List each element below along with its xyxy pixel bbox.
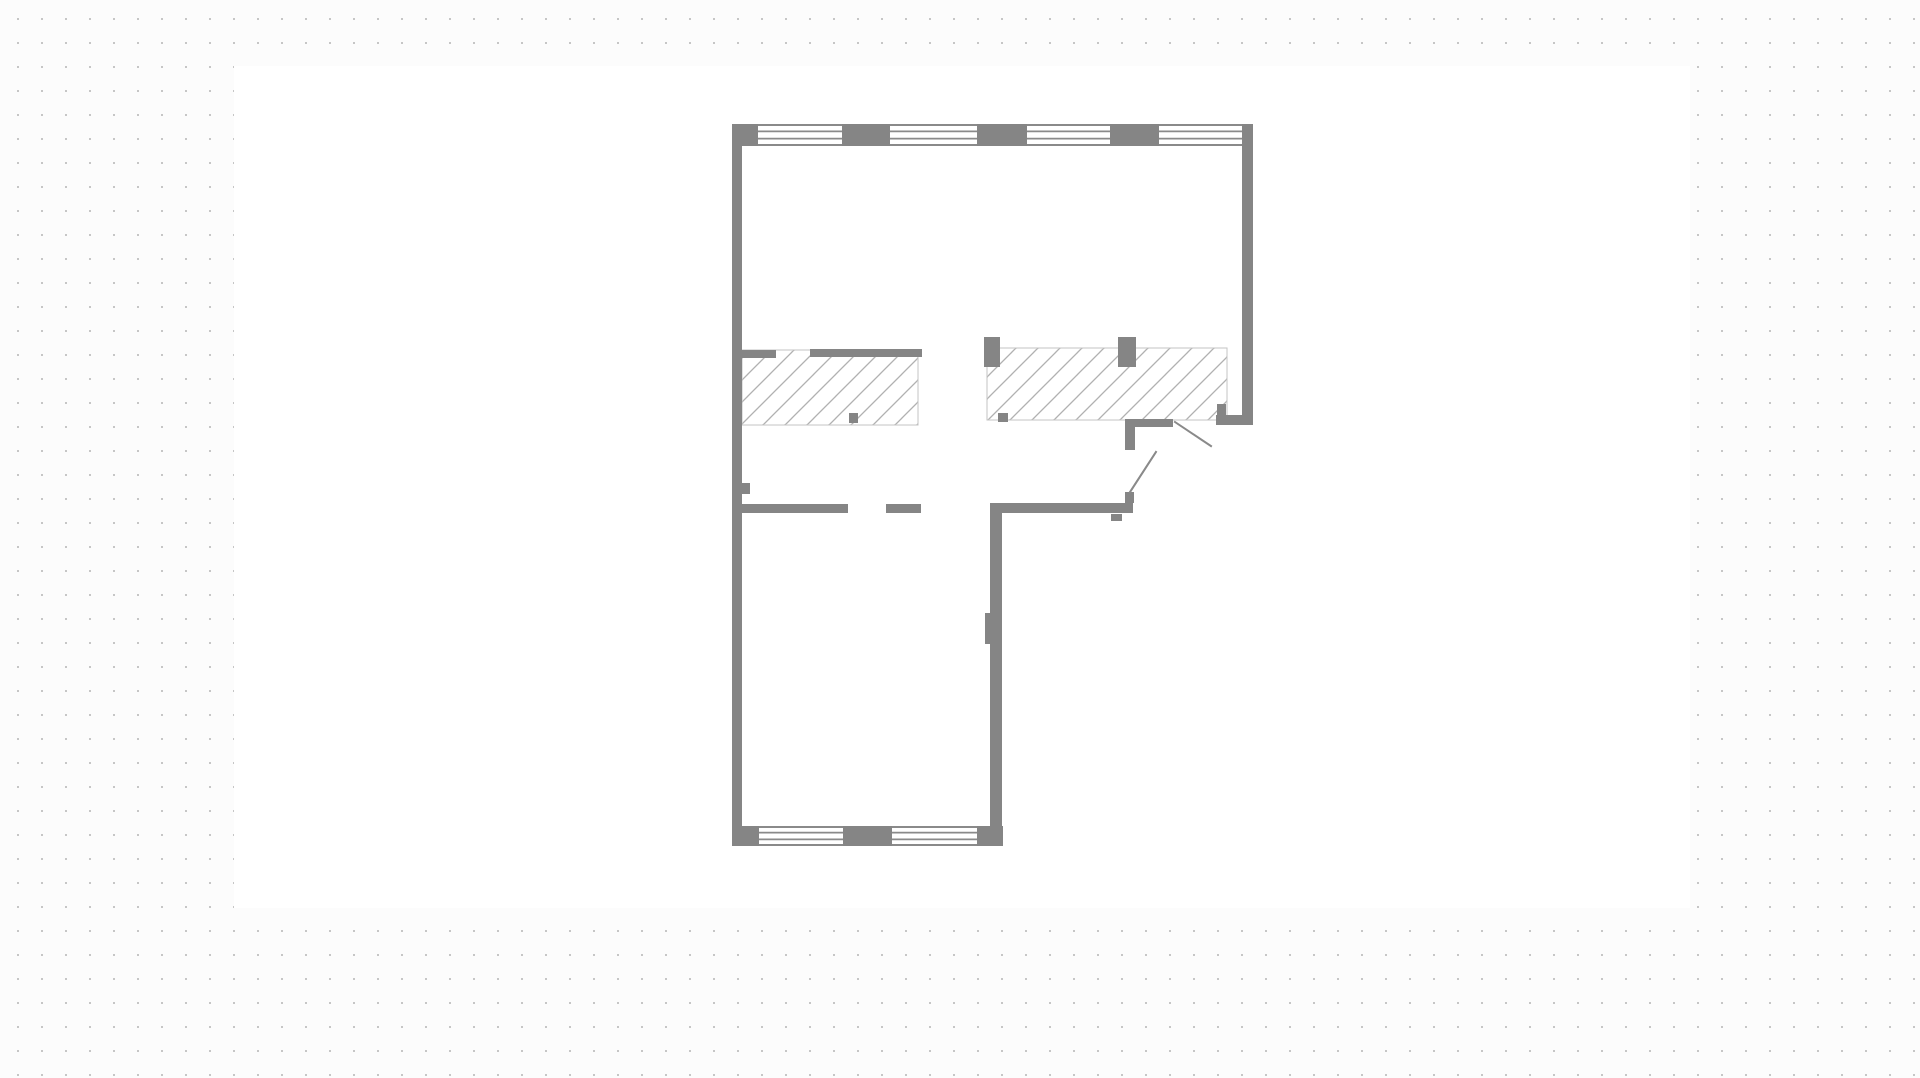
hatch-area-right[interactable] bbox=[987, 348, 1227, 420]
jamb-block-mid-wall[interactable] bbox=[1111, 514, 1122, 521]
hatch-left-top-wall-1[interactable] bbox=[742, 350, 776, 358]
door-hinge-stub[interactable] bbox=[1125, 492, 1134, 503]
jamb-block-right[interactable] bbox=[1217, 404, 1226, 415]
bottom-wall-block[interactable] bbox=[843, 826, 892, 846]
lower-right-wall[interactable] bbox=[990, 503, 1002, 846]
top-wall-block-3[interactable] bbox=[1110, 124, 1159, 146]
left-exterior-wall[interactable] bbox=[732, 124, 742, 845]
window-top-1[interactable] bbox=[758, 124, 842, 146]
bottom-right-corner-block[interactable] bbox=[977, 826, 1003, 846]
mid-wall-left[interactable] bbox=[742, 504, 848, 513]
window-bottom-1[interactable] bbox=[759, 826, 843, 846]
mid-wall-right[interactable] bbox=[990, 503, 1133, 513]
door-jamb-left-wall[interactable] bbox=[742, 483, 750, 494]
right-exterior-wall[interactable] bbox=[1242, 124, 1253, 415]
canvas-page-background bbox=[0, 0, 1920, 1078]
hatch-area-left[interactable] bbox=[742, 350, 918, 425]
window-top-3[interactable] bbox=[1027, 124, 1110, 146]
window-top-4[interactable] bbox=[1159, 124, 1242, 146]
hatch-right-square[interactable] bbox=[998, 413, 1008, 422]
window-top-1-frame bbox=[758, 124, 842, 146]
floor-plan bbox=[0, 0, 1920, 1078]
hatch-left-top-wall-2[interactable] bbox=[810, 349, 922, 357]
window-bottom-2-frame bbox=[892, 826, 977, 846]
window-top-3-frame bbox=[1027, 124, 1110, 146]
hatch-right-pier-2[interactable] bbox=[1118, 337, 1136, 367]
window-bottom-2[interactable] bbox=[892, 826, 977, 846]
right-wall-foot[interactable] bbox=[1216, 415, 1253, 425]
top-wall-block-2[interactable] bbox=[977, 124, 1027, 146]
bottom-left-corner-block[interactable] bbox=[732, 826, 759, 846]
window-top-2-frame bbox=[890, 124, 977, 146]
hatch-right-pier-1[interactable] bbox=[984, 337, 1000, 367]
door-leaf-right[interactable] bbox=[1175, 422, 1211, 446]
window-top-2[interactable] bbox=[890, 124, 977, 146]
window-top-4-frame bbox=[1159, 124, 1242, 146]
door-leaf-left[interactable] bbox=[1130, 452, 1156, 492]
door-jamb-lower-wall[interactable] bbox=[985, 613, 990, 644]
mid-wall-dash[interactable] bbox=[886, 504, 921, 513]
floor-plan-drawing bbox=[0, 0, 1920, 1078]
window-bottom-1-frame bbox=[759, 826, 843, 846]
top-wall-block-1[interactable] bbox=[842, 124, 890, 146]
door-frame-vertical[interactable] bbox=[1125, 419, 1135, 450]
hatch-left-square[interactable] bbox=[849, 413, 858, 423]
